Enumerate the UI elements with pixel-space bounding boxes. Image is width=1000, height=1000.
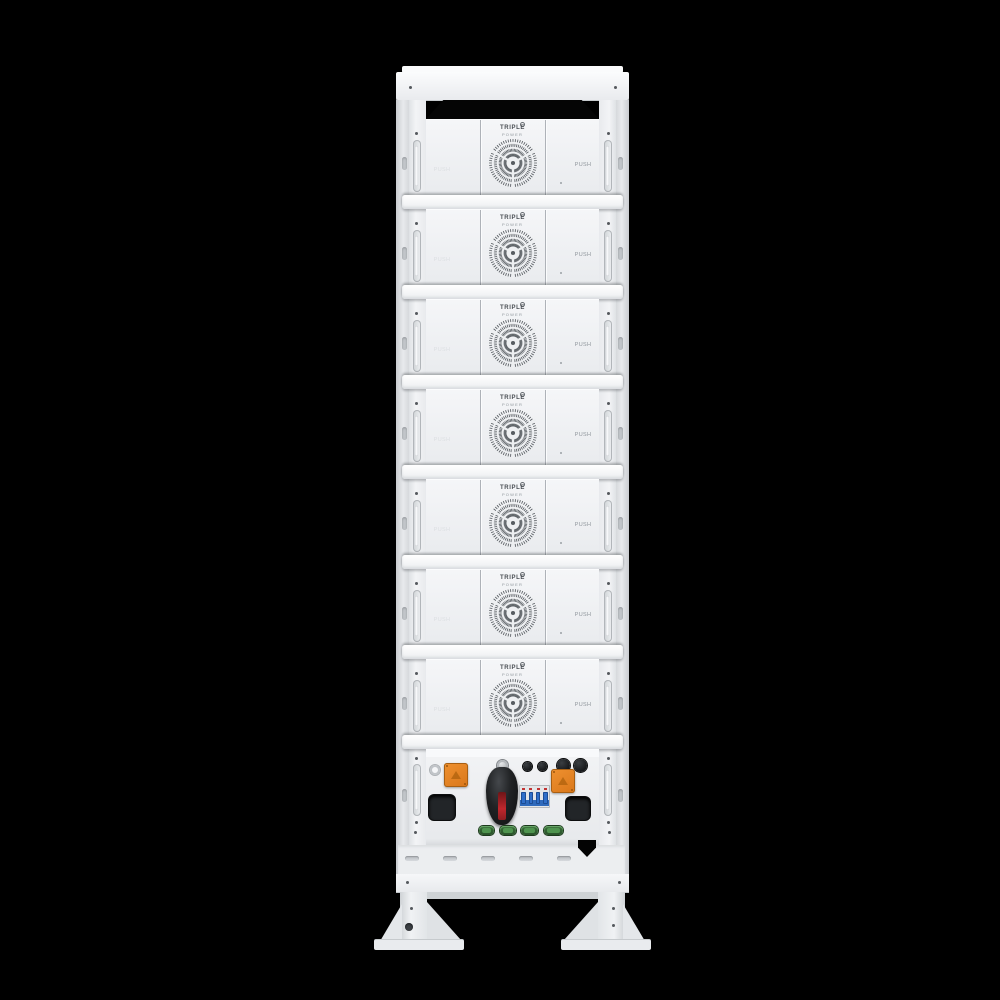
push-indicator-dot xyxy=(560,272,562,274)
power-connector-orange-right xyxy=(551,769,575,793)
battery-module: TRIPLE POWER PUSH PUSH xyxy=(396,389,629,479)
panel-seam xyxy=(545,480,546,556)
rail-slot xyxy=(618,427,623,440)
screw xyxy=(607,582,610,585)
module-handle-left xyxy=(413,590,421,642)
screw xyxy=(415,672,418,675)
unit-handle-right xyxy=(604,764,612,816)
panel-seam xyxy=(480,660,481,736)
breaker-toggle xyxy=(543,792,548,804)
foot-bracket-right xyxy=(564,902,598,940)
foot-bracket-left xyxy=(427,902,461,940)
comm-port-green xyxy=(479,826,494,835)
screw xyxy=(607,492,610,495)
push-label-faint: PUSH xyxy=(430,167,454,173)
rear-crossbar xyxy=(420,892,605,899)
rail-slot xyxy=(402,517,407,530)
brand-logo-line1: TRIPLE xyxy=(492,305,533,312)
screw xyxy=(612,924,615,927)
cable-gland xyxy=(574,759,587,772)
screw xyxy=(415,821,418,824)
comm-port-face xyxy=(503,828,513,833)
comm-port-face xyxy=(482,828,491,833)
panel-seam xyxy=(480,120,481,196)
panel-seam xyxy=(545,210,546,286)
module-handle-left xyxy=(413,230,421,282)
panel-top-lip xyxy=(426,750,599,757)
switch-red-handle xyxy=(498,792,506,820)
screw xyxy=(607,821,610,824)
module-handle-right xyxy=(604,230,612,282)
shelf-bar xyxy=(402,735,623,749)
base-crossbar xyxy=(396,874,629,892)
base-plate-right xyxy=(561,940,651,950)
rail-slot xyxy=(618,517,623,530)
module-handle-left xyxy=(413,320,421,372)
push-label: PUSH xyxy=(571,522,595,528)
push-label-faint: PUSH xyxy=(430,437,454,443)
panel-seam xyxy=(545,300,546,376)
power-connector-orange-left xyxy=(444,763,468,787)
module-handle-left xyxy=(413,410,421,462)
brand-logo-line1: TRIPLE xyxy=(492,215,533,222)
brand-logo-line1: TRIPLE xyxy=(492,125,533,132)
rotary-disconnect-switch xyxy=(486,767,518,825)
screw xyxy=(607,672,610,675)
breaker-indicator xyxy=(537,788,540,791)
panel-seam xyxy=(545,390,546,466)
rail-slot xyxy=(618,337,623,350)
push-indicator-dot xyxy=(560,452,562,454)
screw xyxy=(607,312,610,315)
push-label: PUSH xyxy=(571,432,595,438)
vent-slot xyxy=(481,856,495,861)
push-label: PUSH xyxy=(571,612,595,618)
screw xyxy=(608,831,611,834)
rail-slot xyxy=(402,247,407,260)
rail-slot xyxy=(618,247,623,260)
base-plate-left xyxy=(374,940,464,950)
unit-handle-left xyxy=(413,764,421,816)
screw xyxy=(607,132,610,135)
vent-slot xyxy=(405,856,419,861)
battery-module: TRIPLE POWER PUSH PUSH xyxy=(396,479,629,569)
module-face: TRIPLE POWER PUSH PUSH xyxy=(426,479,599,556)
shelf-bar xyxy=(402,465,623,479)
shelf-bar xyxy=(402,195,623,209)
push-label-faint: PUSH xyxy=(430,707,454,713)
control-unit xyxy=(396,749,629,845)
panel-seam xyxy=(480,390,481,466)
module-face: TRIPLE POWER PUSH PUSH xyxy=(426,569,599,646)
rail-slot xyxy=(618,789,623,802)
anchor-hole xyxy=(405,923,413,931)
top-opening xyxy=(426,100,599,119)
breaker-toggle xyxy=(529,792,534,804)
vent-slot xyxy=(557,856,571,861)
breaker-toggle xyxy=(521,792,526,804)
battery-rack-product-image: TRIPLE POWER PUSH PUSH TRIPLE POWER xyxy=(0,0,1000,1000)
panel-seam xyxy=(480,210,481,286)
rail-slot xyxy=(402,697,407,710)
panel-seam xyxy=(545,120,546,196)
port-black-left xyxy=(429,795,455,820)
circuit-breaker xyxy=(519,785,550,808)
push-indicator-dot xyxy=(560,362,562,364)
comm-port-face xyxy=(547,828,560,833)
screw xyxy=(415,132,418,135)
module-handle-right xyxy=(604,320,612,372)
screw xyxy=(406,881,409,884)
shelf-bar xyxy=(402,555,623,569)
screw xyxy=(409,86,412,89)
module-face: TRIPLE POWER PUSH PUSH xyxy=(426,659,599,736)
comm-port-face xyxy=(524,828,535,833)
comm-port-green xyxy=(521,826,538,835)
control-panel xyxy=(426,749,599,846)
module-face: TRIPLE POWER PUSH PUSH xyxy=(426,119,599,196)
round-gland-white xyxy=(430,765,440,775)
screw xyxy=(415,312,418,315)
module-face: TRIPLE POWER PUSH PUSH xyxy=(426,389,599,466)
cable-gland xyxy=(523,762,532,771)
push-indicator-dot xyxy=(560,722,562,724)
breaker-indicator xyxy=(522,788,525,791)
battery-module: TRIPLE POWER PUSH PUSH xyxy=(396,659,629,749)
rail-slot xyxy=(618,697,623,710)
fan-grille-icon xyxy=(485,405,541,461)
fan-grille-icon xyxy=(485,495,541,551)
screw xyxy=(607,402,610,405)
push-indicator-dot xyxy=(560,542,562,544)
module-face: TRIPLE POWER PUSH PUSH xyxy=(426,299,599,376)
battery-module: TRIPLE POWER PUSH PUSH xyxy=(396,569,629,659)
battery-module: TRIPLE POWER PUSH PUSH xyxy=(396,209,629,299)
push-label: PUSH xyxy=(571,342,595,348)
brand-logo-line1: TRIPLE xyxy=(492,485,533,492)
breaker-toggle xyxy=(536,792,541,804)
rail-slot xyxy=(402,157,407,170)
fan-grille-icon xyxy=(485,675,541,731)
panel-seam xyxy=(480,570,481,646)
push-label-faint: PUSH xyxy=(430,257,454,263)
screw xyxy=(415,222,418,225)
comm-port-green xyxy=(500,826,516,835)
top-cap-bar xyxy=(396,72,629,100)
screw xyxy=(415,757,418,760)
push-label: PUSH xyxy=(571,252,595,258)
warning-triangle-icon xyxy=(451,771,461,779)
push-label-faint: PUSH xyxy=(430,617,454,623)
module-handle-right xyxy=(604,410,612,462)
battery-module: TRIPLE POWER PUSH PUSH xyxy=(396,119,629,209)
breaker-indicator xyxy=(544,788,547,791)
panel-seam xyxy=(545,570,546,646)
rail-slot xyxy=(618,607,623,620)
warning-triangle-icon xyxy=(558,777,568,785)
screw xyxy=(612,907,615,910)
fan-grille-icon xyxy=(485,135,541,191)
push-indicator-dot xyxy=(560,632,562,634)
rail-slot xyxy=(402,427,407,440)
screw xyxy=(410,907,413,910)
push-label: PUSH xyxy=(571,702,595,708)
breaker-indicator xyxy=(529,788,532,791)
brand-logo-line1: TRIPLE xyxy=(492,575,533,582)
screw xyxy=(618,881,621,884)
cable-gland xyxy=(538,762,547,771)
battery-module: TRIPLE POWER PUSH PUSH xyxy=(396,299,629,389)
push-indicator-dot xyxy=(560,182,562,184)
push-label-faint: PUSH xyxy=(430,527,454,533)
screw xyxy=(415,402,418,405)
fan-grille-icon xyxy=(485,225,541,281)
rail-slot xyxy=(402,789,407,802)
fan-grille-icon xyxy=(485,315,541,371)
comm-port-green xyxy=(544,826,563,835)
screw xyxy=(415,492,418,495)
panel-seam xyxy=(545,660,546,736)
module-handle-right xyxy=(604,140,612,192)
panel-seam xyxy=(480,300,481,376)
module-handle-right xyxy=(604,500,612,552)
panel-seam xyxy=(480,480,481,556)
fan-grille-icon xyxy=(485,585,541,641)
vent-slot xyxy=(443,856,457,861)
brand-logo-line1: TRIPLE xyxy=(492,665,533,672)
screw xyxy=(614,86,617,89)
push-label-faint: PUSH xyxy=(430,347,454,353)
module-handle-left xyxy=(413,680,421,732)
brand-logo-line1: TRIPLE xyxy=(492,395,533,402)
module-handle-right xyxy=(604,590,612,642)
rail-slot xyxy=(402,337,407,350)
push-label: PUSH xyxy=(571,162,595,168)
port-black-right xyxy=(566,797,590,820)
screw xyxy=(607,222,610,225)
screw xyxy=(415,582,418,585)
shelf-bar xyxy=(402,375,623,389)
module-handle-right xyxy=(604,680,612,732)
shelf-bar xyxy=(402,645,623,659)
screw xyxy=(414,831,417,834)
module-face: TRIPLE POWER PUSH PUSH xyxy=(426,209,599,286)
rail-slot xyxy=(618,157,623,170)
shelf-bar xyxy=(402,285,623,299)
module-handle-left xyxy=(413,500,421,552)
vent-slot xyxy=(519,856,533,861)
module-handle-left xyxy=(413,140,421,192)
rail-slot xyxy=(402,607,407,620)
screw xyxy=(607,757,610,760)
